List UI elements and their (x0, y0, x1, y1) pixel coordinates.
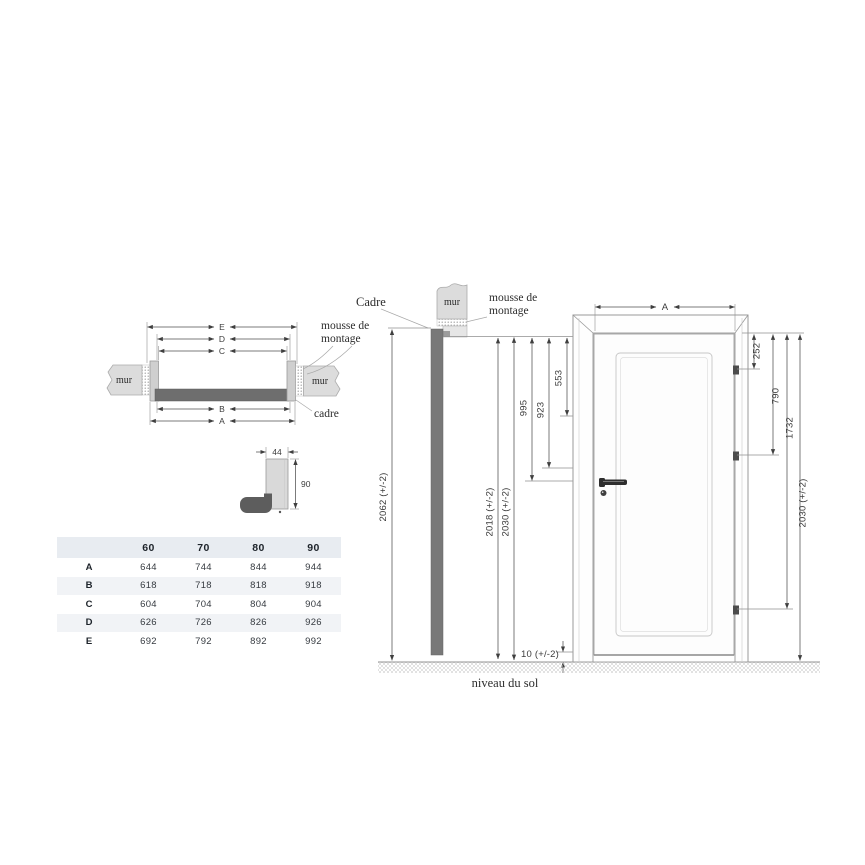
frame-head-bar (155, 389, 291, 401)
dim-hinge-middle: 790 (771, 388, 782, 404)
dim-door-width: A (662, 302, 669, 313)
cell: 726 (176, 614, 231, 633)
mounting-foam-left (142, 365, 150, 395)
technical-drawing-page: mur mur E D C B A mousse de montage (0, 0, 865, 865)
size-table-corner-cell (57, 537, 121, 558)
mounting-foam-label-line2: montage (321, 333, 361, 345)
hinge-middle (733, 452, 739, 461)
cell: 644 (121, 558, 176, 577)
cell: 626 (121, 614, 176, 633)
dim-floor-gap: 10 (+/-2) (521, 649, 559, 660)
frame-callout-label: Cadre (356, 295, 386, 309)
row-label: B (57, 577, 121, 596)
frame-label: cadre (314, 408, 339, 420)
mounting-foam-callout-line1: mousse de (489, 292, 537, 304)
wall-left-label: mur (116, 375, 133, 386)
table-row-b: B 618 718 818 918 (57, 577, 341, 596)
dim-label-b: B (219, 404, 225, 414)
cell: 926 (286, 614, 341, 633)
door-elevation: A 252 790 1732 2030 (+/-2) (573, 302, 809, 662)
table-row-c: C 604 704 804 904 (57, 595, 341, 614)
ground-level-label: niveau du sol (472, 676, 539, 690)
cell: 792 (176, 632, 231, 651)
keyhole (601, 490, 607, 496)
dim-elevation-height: 2030 (+/-2) (798, 479, 809, 528)
mounting-foam-label-line1: mousse de (321, 320, 369, 332)
mounting-foam-right (296, 366, 304, 396)
door-leaf (594, 334, 734, 655)
dim-label-c: C (219, 346, 225, 356)
col-header-90: 90 (286, 537, 341, 558)
cell: 892 (231, 632, 286, 651)
dim-frame-total-height: 2062 (+/-2) (378, 473, 389, 522)
hinge-top (733, 366, 739, 375)
row-label: A (57, 558, 121, 577)
cell: 704 (176, 595, 231, 614)
vertical-section: Cadre mur mousse de montage 2062 (+/-2) … (356, 284, 593, 673)
cell: 826 (231, 614, 286, 633)
cell: 904 (286, 595, 341, 614)
ground-hatch (378, 662, 820, 673)
cell: 744 (176, 558, 231, 577)
dim-label-e: E (219, 322, 225, 332)
cell: 692 (121, 632, 176, 651)
cell: 804 (231, 595, 286, 614)
cell: 992 (286, 632, 341, 651)
dim-label-d: D (219, 334, 225, 344)
row-label: D (57, 614, 121, 633)
row-label: E (57, 632, 121, 651)
frame-jamb-right (287, 361, 296, 401)
cell: 944 (286, 558, 341, 577)
table-row-e: E 692 792 892 992 (57, 632, 341, 651)
ground: niveau du sol (378, 662, 820, 690)
dim-inner-height: 2018 (+/-2) (485, 488, 496, 537)
wall-section-label: mur (444, 297, 461, 308)
wall-right-label: mur (312, 376, 329, 387)
cell: 918 (286, 577, 341, 596)
frame-post-section (431, 329, 443, 655)
cell: 818 (231, 577, 286, 596)
door-installation-drawing: mur mur E D C B A mousse de montage (0, 0, 865, 865)
col-header-60: 60 (121, 537, 176, 558)
cell: 718 (176, 577, 231, 596)
dim-hinge-top: 252 (752, 343, 763, 359)
table-row-d: D 626 726 826 926 (57, 614, 341, 633)
dim-opening-height: 2030 (+/-2) (501, 488, 512, 537)
size-table-header-row: 60 70 80 90 (57, 537, 341, 558)
cell: 844 (231, 558, 286, 577)
dim-upper-position: 553 (554, 370, 565, 386)
dim-hinge-bottom: 1732 (785, 417, 796, 439)
col-header-70: 70 (176, 537, 231, 558)
table-row-a: A 644 744 844 944 (57, 558, 341, 577)
dim-profile-width: 44 (272, 447, 282, 457)
hinge-bottom (733, 606, 739, 615)
frame-profile-detail: 44 90 (240, 447, 311, 513)
col-header-80: 80 (231, 537, 286, 558)
dim-label-a: A (219, 416, 225, 426)
plan-section: mur mur E D C B A mousse de montage (107, 320, 369, 426)
door-leaf-rebate (264, 494, 272, 505)
dim-profile-height: 90 (301, 479, 311, 489)
cell: 604 (121, 595, 176, 614)
mounting-foam-callout-line2: montage (489, 305, 529, 317)
mounting-foam-section (437, 319, 467, 326)
size-table: 60 70 80 90 A 644 744 844 944 B 618 718 … (57, 537, 341, 651)
dim-handle-position: 995 (519, 400, 530, 416)
cell: 618 (121, 577, 176, 596)
dim-lock-position: 923 (536, 402, 547, 418)
row-label: C (57, 595, 121, 614)
